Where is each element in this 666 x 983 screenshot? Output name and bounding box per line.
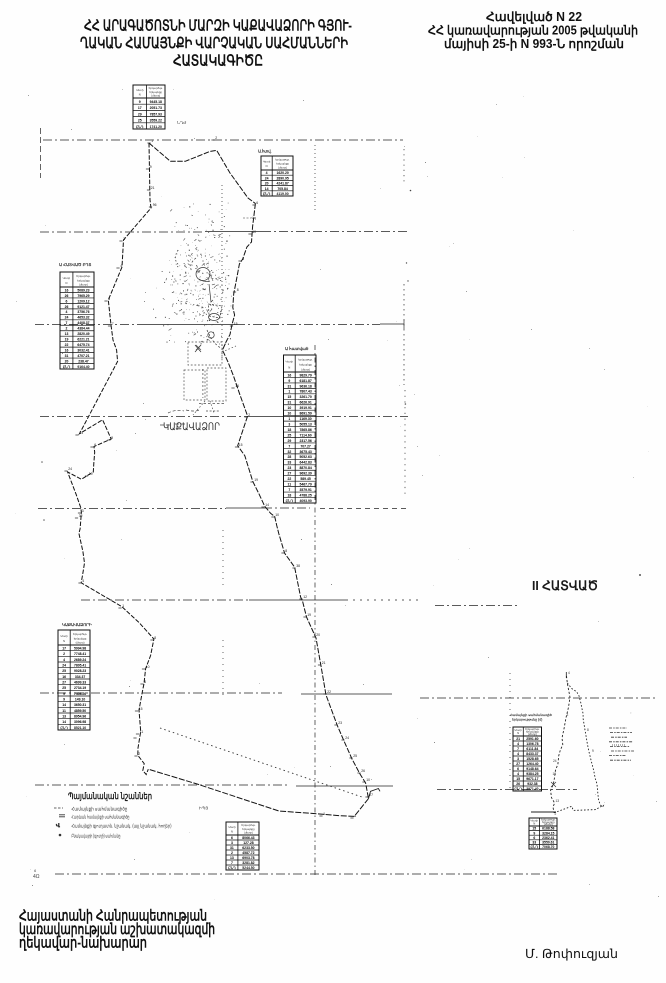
svg-text:1528.65: 1528.65: [526, 757, 538, 761]
svg-text:N: N: [266, 164, 268, 168]
svg-text:7: 7: [288, 444, 290, 448]
svg-text:Երկարութ.: Երկարութ.: [73, 632, 88, 636]
svg-text:4707.21: 4707.21: [77, 354, 89, 358]
svg-text:29: 29: [138, 112, 142, 116]
svg-text:3: 3: [123, 237, 125, 241]
svg-text:2317.56: 2317.56: [299, 439, 311, 443]
svg-text:3756.76: 3756.76: [77, 310, 89, 314]
svg-text:10: 10: [366, 778, 370, 782]
svg-text:Ա.հտվ.: Ա.հտվ.: [258, 149, 272, 154]
svg-text:1264.40: 1264.40: [526, 762, 538, 766]
svg-text:21: 21: [322, 661, 326, 665]
svg-text:4653.32: 4653.32: [77, 316, 89, 320]
svg-text:24: 24: [68, 467, 72, 471]
svg-text:Երկարութ.: Երկարութ.: [76, 274, 91, 278]
svg-text:8433.37: 8433.37: [526, 752, 538, 756]
svg-text:4241.87: 4241.87: [276, 182, 288, 186]
svg-text:10: 10: [252, 230, 256, 234]
svg-text:Երկարութ.: Երկարութ.: [149, 86, 164, 90]
svg-text:ԿԱՔԱՎԱՁՈՐ: ԿԱՔԱՎԱՁՈՐ: [163, 421, 221, 433]
svg-text:26: 26: [361, 769, 365, 773]
svg-text:20: 20: [65, 359, 69, 363]
svg-text:8066.43: 8066.43: [242, 836, 254, 840]
svg-text:4587.72: 4587.72: [242, 851, 254, 855]
svg-text:19: 19: [307, 613, 311, 617]
svg-text:N: N: [139, 92, 141, 96]
svg-text:N: N: [288, 366, 290, 370]
svg-text:31: 31: [230, 846, 234, 850]
svg-text:22: 22: [287, 477, 291, 481]
svg-text:1741.20: 1741.20: [150, 125, 162, 129]
svg-text:238.47: 238.47: [78, 359, 88, 363]
svg-text:2: 2: [248, 413, 250, 417]
svg-text:1169.30: 1169.30: [300, 417, 312, 421]
svg-text:4: 4: [517, 772, 519, 776]
svg-text:ԸՆԴ: ԸՆԴ: [136, 125, 144, 129]
svg-text:5244.50: 5244.50: [242, 866, 254, 870]
svg-text:Կետի: Կետի: [285, 360, 293, 364]
svg-text:23: 23: [287, 466, 291, 470]
svg-text:2: 2: [215, 136, 217, 140]
svg-text:ԸՆԴ: ԸՆԴ: [286, 499, 294, 503]
svg-text:3096.98: 3096.98: [74, 720, 86, 724]
svg-text:2: 2: [555, 812, 557, 816]
svg-text:1: 1: [151, 139, 153, 143]
svg-text:3: 3: [288, 422, 290, 426]
svg-text:149.10: 149.10: [75, 698, 85, 702]
svg-text:14: 14: [79, 431, 83, 435]
svg-text:երկայնքը: երկայնքը: [276, 162, 289, 166]
svg-text:3: 3: [517, 757, 519, 761]
svg-text:(մետր): (մետր): [76, 641, 85, 645]
svg-text:14: 14: [265, 187, 269, 191]
svg-text:14: 14: [62, 703, 66, 707]
svg-text:Երկարութ.: Երկարութ.: [275, 157, 290, 161]
svg-text:10: 10: [287, 412, 291, 416]
svg-text:երկարությունը (մ): երկարությունը (մ): [512, 718, 542, 722]
svg-text:Կետի: Կետի: [60, 634, 68, 638]
svg-text:14: 14: [62, 720, 66, 724]
svg-text:18: 18: [287, 428, 291, 432]
svg-text:6903.78: 6903.78: [242, 856, 254, 860]
svg-text:38: 38: [296, 564, 300, 568]
svg-text:2591.60: 2591.60: [526, 737, 538, 741]
svg-text:9028.23: 9028.23: [74, 669, 86, 673]
svg-text:6475.74: 6475.74: [77, 343, 89, 347]
svg-text:3281.82: 3281.82: [242, 861, 254, 865]
svg-text:334.37: 334.37: [75, 675, 85, 679]
svg-text:Համայնքի սահմանագիծը: Համայնքի սահմանագիծը: [72, 807, 128, 813]
svg-text:19: 19: [254, 478, 258, 482]
svg-text:7748.41: 7748.41: [74, 652, 86, 656]
svg-text:7805.41: 7805.41: [74, 664, 86, 668]
svg-text:երկայնքը: երկայնքը: [149, 90, 162, 94]
svg-text:15: 15: [532, 827, 536, 831]
svg-text:27: 27: [516, 762, 520, 766]
svg-text:2: 2: [63, 652, 65, 656]
svg-text:(մետր): (մետր): [528, 732, 537, 736]
svg-text:մայիսի 25-ի N 993-Ն որոշման: մայիսի 25-ի N 993-Ն որոշման: [444, 37, 624, 51]
svg-text:6233.50: 6233.50: [242, 846, 254, 850]
svg-text:2734.19: 2734.19: [74, 686, 86, 690]
svg-text:9: 9: [150, 165, 152, 169]
svg-text:Պայմանական նշաններ: Պայմանական նշաններ: [68, 791, 152, 802]
svg-text:25: 25: [62, 669, 66, 673]
svg-text:6442.83: 6442.83: [299, 461, 311, 465]
svg-text:3: 3: [231, 841, 233, 845]
svg-text:16: 16: [65, 349, 69, 353]
svg-text:3559.22: 3559.22: [150, 119, 162, 123]
svg-text:1: 1: [122, 604, 124, 608]
svg-text:Կետի: Կետի: [63, 276, 71, 280]
svg-text:25: 25: [62, 686, 66, 690]
svg-text:13: 13: [65, 332, 69, 336]
svg-text:1: 1: [323, 812, 325, 816]
svg-text:6: 6: [94, 443, 96, 447]
svg-text:Վ: Վ: [56, 823, 60, 829]
svg-text:6: 6: [256, 201, 258, 205]
svg-text:9445.18: 9445.18: [150, 100, 162, 104]
svg-text:5052.63: 5052.63: [299, 455, 311, 459]
svg-text:5: 5: [108, 297, 110, 301]
svg-text:ԸՆԴ: ԸՆԴ: [228, 866, 236, 870]
svg-text:10: 10: [275, 513, 279, 517]
svg-text:Երկարութ.: Երկարութ.: [241, 823, 256, 827]
svg-text:4119.00: 4119.00: [277, 192, 289, 196]
svg-text:6221.21: 6221.21: [77, 338, 89, 342]
svg-text:32: 32: [79, 514, 83, 518]
svg-text:24: 24: [65, 316, 69, 320]
svg-text:127.28: 127.28: [243, 841, 253, 845]
svg-text:15: 15: [516, 777, 520, 781]
svg-text:ԸՆԴ: ԸՆԴ: [63, 365, 71, 369]
svg-text:19: 19: [65, 338, 69, 342]
svg-text:7807.43: 7807.43: [299, 390, 311, 394]
svg-text:Կետի: Կետի: [263, 159, 271, 163]
svg-text:4788.25: 4788.25: [299, 493, 311, 497]
svg-text:7: 7: [66, 321, 68, 325]
svg-text:24: 24: [553, 759, 557, 763]
svg-text:8870.84: 8870.84: [299, 466, 311, 470]
svg-text:4859.50: 4859.50: [74, 709, 86, 713]
svg-text:705.84: 705.84: [277, 187, 287, 191]
svg-text:24: 24: [62, 664, 66, 668]
svg-text:10: 10: [287, 406, 291, 410]
svg-text:15: 15: [239, 443, 243, 447]
svg-text:12: 12: [303, 595, 307, 599]
svg-text:(մետր): (մետր): [151, 94, 160, 98]
svg-text:Կետի: Կետի: [228, 825, 236, 829]
svg-text:9671.17: 9671.17: [526, 777, 538, 781]
svg-text:14: 14: [265, 503, 269, 507]
svg-text:2689.24: 2689.24: [74, 658, 86, 662]
svg-text:33: 33: [532, 840, 536, 844]
svg-text:24: 24: [265, 176, 269, 180]
svg-text:4384.44: 4384.44: [77, 327, 89, 331]
svg-text:11: 11: [62, 709, 66, 713]
svg-text:4: 4: [63, 658, 65, 662]
svg-text:8954.96: 8954.96: [74, 715, 86, 719]
svg-text:3650.31: 3650.31: [74, 703, 86, 707]
svg-text:9692.39: 9692.39: [299, 472, 311, 476]
svg-text:Համայնքի սահմանագիծ: Համայնքի սահմանագիծ: [510, 712, 552, 717]
svg-text:22: 22: [327, 690, 331, 694]
svg-text:ՀՀ կառավարության 2005 թվականի: ՀՀ կառավարության 2005 թվականի: [428, 24, 638, 38]
svg-text:9148.64: 9148.64: [526, 767, 538, 771]
svg-text:8: 8: [587, 728, 589, 732]
svg-text:N: N: [517, 731, 519, 735]
svg-text:Երկարութ.: Երկարութ.: [298, 357, 313, 361]
svg-text:10: 10: [89, 472, 93, 476]
svg-text:7: 7: [231, 861, 233, 865]
svg-text:25: 25: [353, 754, 357, 758]
svg-text:31: 31: [65, 354, 69, 358]
svg-text:7068.70: 7068.70: [542, 845, 554, 849]
svg-text:Մ. Թոփուզյան: Մ. Թոփուզյան: [525, 947, 618, 961]
svg-text:6626.91: 6626.91: [299, 401, 311, 405]
svg-text:ղեկավար-նախարար: ղեկավար-նախարար: [19, 935, 147, 952]
svg-text:4: 4: [66, 310, 68, 314]
svg-text:7865.86: 7865.86: [299, 428, 311, 432]
svg-text:9121.47: 9121.47: [77, 305, 89, 309]
svg-text:15: 15: [287, 395, 291, 399]
svg-text:երկայնքը: երկայնքը: [299, 363, 312, 367]
svg-text:27: 27: [62, 681, 66, 685]
svg-text:Վզ: Վզ: [251, 216, 257, 220]
svg-text:երկայնքը: երկայնքը: [242, 827, 255, 831]
svg-text:9: 9: [111, 436, 113, 440]
svg-text:9: 9: [533, 831, 535, 835]
svg-text:ԸՆԴ: ԸՆԴ: [514, 787, 522, 791]
svg-text:32: 32: [287, 450, 291, 454]
svg-text:6188.58: 6188.58: [542, 827, 554, 831]
svg-text:11: 11: [288, 483, 292, 487]
svg-text:ՆՂԺ: ՆՂԺ: [177, 120, 186, 125]
svg-text:16: 16: [62, 675, 66, 679]
svg-text:2362.41: 2362.41: [542, 836, 554, 840]
svg-text:3579.91: 3579.91: [299, 488, 311, 492]
svg-text:27: 27: [287, 472, 291, 476]
svg-text:11: 11: [140, 730, 144, 734]
svg-text:ԿԱՔԱՎԱՁՈՐԻ: ԿԱՔԱՎԱՁՈՐԻ: [62, 622, 92, 627]
svg-text:1: 1: [288, 417, 290, 421]
svg-text:6: 6: [231, 836, 233, 840]
svg-text:932.38: 932.38: [527, 782, 537, 786]
svg-text:7: 7: [288, 488, 290, 492]
svg-text:5055.13: 5055.13: [299, 422, 311, 426]
svg-text:II ՀԱՏՎԱԾ: II ՀԱՏՎԱԾ: [532, 578, 598, 593]
svg-text:(մետր): (մետր): [244, 831, 253, 835]
svg-text:N: N: [66, 281, 68, 285]
svg-text:20: 20: [316, 633, 320, 637]
svg-text:ԻՊՅ: ԻՊՅ: [199, 806, 208, 811]
svg-text:17: 17: [138, 106, 142, 110]
svg-text:3971.40: 3971.40: [526, 787, 538, 791]
svg-text:707.27: 707.27: [300, 444, 310, 448]
svg-text:31: 31: [287, 384, 291, 388]
svg-text:26: 26: [516, 782, 520, 786]
svg-text:21: 21: [151, 186, 155, 190]
svg-text:7: 7: [112, 322, 114, 326]
svg-text:4Ω: 4Ω: [33, 874, 40, 880]
svg-text:29: 29: [287, 439, 291, 443]
svg-text:7965.29: 7965.29: [77, 294, 89, 298]
svg-text:7114.60: 7114.60: [300, 433, 312, 437]
svg-text:2890.95: 2890.95: [276, 176, 288, 180]
svg-text:1306.78: 1306.78: [526, 742, 538, 746]
svg-text:Հավելված N 22: Հավելված N 22: [486, 10, 582, 24]
svg-text:2: 2: [138, 752, 140, 756]
svg-text:15: 15: [234, 322, 238, 326]
svg-text:28: 28: [287, 455, 291, 459]
svg-text:ԸՆԴ: ԸՆԴ: [531, 845, 539, 849]
svg-text:8: 8: [237, 288, 239, 292]
svg-text:(մետր): (մետր): [301, 367, 310, 371]
svg-text:589.45: 589.45: [300, 477, 310, 481]
svg-text:1620.20: 1620.20: [276, 171, 288, 175]
svg-text:9829.79: 9829.79: [299, 373, 311, 377]
svg-text:9164.40: 9164.40: [77, 365, 89, 369]
svg-text:31: 31: [287, 401, 291, 405]
svg-text:5467.79: 5467.79: [299, 483, 311, 487]
svg-text:24: 24: [345, 736, 349, 740]
svg-text:10: 10: [146, 665, 150, 669]
svg-text:16: 16: [287, 373, 291, 377]
svg-text:4699.33: 4699.33: [74, 681, 86, 685]
svg-text:5994.98: 5994.98: [74, 647, 86, 651]
svg-text:3675.43: 3675.43: [299, 450, 311, 454]
svg-text:9384.25: 9384.25: [526, 772, 538, 776]
svg-text:23: 23: [338, 721, 342, 725]
svg-text:4093.90: 4093.90: [299, 499, 311, 503]
svg-text:3: 3: [567, 713, 569, 717]
svg-text:3284.15: 3284.15: [542, 831, 554, 835]
svg-text:3: 3: [82, 509, 84, 513]
svg-text:1: 1: [288, 390, 290, 394]
svg-text:Ա հատված: Ա հատված: [285, 346, 309, 351]
svg-text:N: N: [63, 639, 65, 643]
svg-text:22: 22: [65, 343, 69, 347]
svg-text:6: 6: [533, 836, 535, 840]
svg-text:ՀԱՏԱԿԱԳԻԾԸ: ՀԱՏԱԿԱԳԻԾԸ: [173, 53, 263, 70]
svg-text:33: 33: [287, 461, 291, 465]
svg-text:6: 6: [144, 680, 146, 684]
svg-text:ԸՆԴ: ԸՆԴ: [60, 726, 68, 730]
svg-text:ՂԱԿԱՆ ՀԱՄԱՅՆՔԻ ՎԱՐՉԱԿԱՆ ՍԱՀՄԱՆ: ՂԱԿԱՆ ՀԱՄԱՅՆՔԻ ՎԱՐՉԱԿԱՆ ՍԱՀՄԱՆՆԵՐԻ: [80, 35, 348, 52]
svg-text:4: 4: [517, 752, 519, 756]
svg-text:Բնակավայրի (գյուղի) սահմանը: Բնակավայրի (գյուղի) սահմանը: [72, 834, 121, 840]
svg-text:5089.23: 5089.23: [77, 288, 89, 292]
svg-text:2051.73: 2051.73: [150, 106, 162, 110]
svg-text:25: 25: [138, 119, 142, 123]
svg-text:16: 16: [235, 384, 239, 388]
svg-text:3261.70: 3261.70: [299, 395, 311, 399]
svg-text:9: 9: [63, 698, 65, 702]
svg-text:8521.10: 8521.10: [74, 726, 86, 730]
svg-text:2: 2: [66, 327, 68, 331]
svg-text:27: 27: [369, 793, 373, 797]
svg-text:16: 16: [65, 288, 69, 292]
svg-text:2820.49: 2820.49: [77, 332, 89, 336]
svg-text:Հարևան համայնքի սահմանագիծը: Հարևան համայնքի սահմանագիծը: [72, 814, 130, 820]
svg-text:7: 7: [517, 747, 519, 751]
svg-text:13: 13: [62, 715, 66, 719]
svg-text:3032.41: 3032.41: [77, 349, 89, 353]
svg-text:4: 4: [354, 814, 356, 818]
svg-text:2: 2: [231, 851, 233, 855]
svg-text:4: 4: [82, 579, 84, 583]
svg-text:6: 6: [66, 299, 68, 303]
svg-text:4: 4: [568, 671, 570, 675]
svg-text:7408.26: 7408.26: [74, 692, 86, 696]
svg-text:8: 8: [154, 636, 156, 640]
svg-text:4: 4: [120, 264, 122, 268]
svg-text:9: 9: [592, 749, 594, 753]
svg-text:6181.87: 6181.87: [299, 379, 311, 383]
svg-text:6: 6: [517, 767, 519, 771]
svg-text:13: 13: [230, 856, 234, 860]
svg-text:10: 10: [553, 772, 557, 776]
svg-text:7857.93: 7857.93: [150, 112, 162, 116]
svg-text:9: 9: [139, 100, 141, 104]
svg-text:երկայնքը: երկայնքը: [77, 278, 90, 282]
svg-text:13: 13: [556, 799, 560, 803]
svg-text:ՀՀ ԱՐԱԳԱԾՈՏՆԻ ՄԱՐԶԻ ԿԱՔԱՎԱՁՈՐԻ: ՀՀ ԱՐԱԳԱԾՈՏՆԻ ՄԱՐԶԻ ԿԱՔԱՎԱՁՈՐԻ ԳՅՈՒ-: [84, 18, 352, 35]
svg-text:3550.61: 3550.61: [542, 840, 554, 844]
svg-text:9: 9: [288, 379, 290, 383]
svg-text:26: 26: [65, 294, 69, 298]
svg-text:N: N: [533, 821, 535, 825]
svg-text:8691.59: 8691.59: [299, 412, 311, 416]
svg-text:Ա ՀԱՏՎԱԾ ԲԴՏ: Ա ՀԱՏՎԱԾ ԲԴՏ: [59, 262, 92, 267]
svg-text:3919.91: 3919.91: [299, 406, 311, 410]
svg-text:(մետր): (մետր): [544, 822, 553, 826]
svg-text:N: N: [231, 829, 233, 833]
svg-text:25: 25: [287, 433, 291, 437]
svg-text:1209.12: 1209.12: [77, 299, 89, 303]
svg-text:26: 26: [65, 305, 69, 309]
svg-text:Կետի: Կետի: [136, 88, 144, 92]
svg-text:6111.84: 6111.84: [526, 747, 538, 751]
svg-text:4: 4: [266, 171, 268, 175]
svg-text:ԸՆԴ: ԸՆԴ: [263, 192, 271, 196]
svg-text:96: 96: [153, 203, 157, 207]
svg-text:9636.18: 9636.18: [299, 384, 311, 388]
svg-text:15: 15: [139, 707, 143, 711]
svg-text:20: 20: [265, 182, 269, 186]
svg-text:(մետր): (մետր): [278, 166, 287, 170]
svg-text:21: 21: [516, 737, 520, 741]
svg-text:9: 9: [63, 692, 65, 696]
svg-text:3: 3: [242, 257, 244, 261]
svg-text:Համայնքի գյուղատն. նշանակ. (այ: Համայնքի գյուղատն. նշանակ. (այլ նշանակ. …: [72, 824, 172, 830]
svg-text:4408.37: 4408.37: [77, 321, 89, 325]
svg-text:երկայնքը: երկայնքը: [74, 636, 87, 640]
svg-text:4: 4: [517, 742, 519, 746]
svg-text:17: 17: [62, 647, 66, 651]
svg-text:18: 18: [287, 493, 291, 497]
svg-text:8: 8: [285, 549, 287, 553]
svg-text:(մետր): (մետր): [79, 283, 88, 287]
